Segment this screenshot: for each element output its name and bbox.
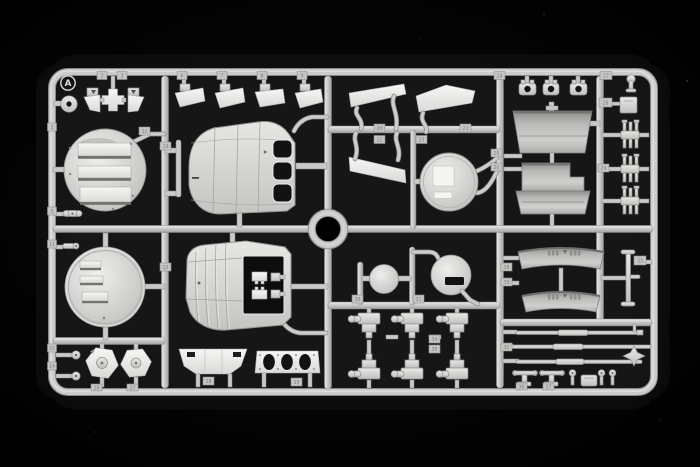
svg-text:22: 22 [376,138,382,144]
svg-text:14: 14 [49,364,55,370]
part-number-tag: 7 [217,72,227,80]
part-number-tag: 16 [91,384,102,392]
part-number-tag: 14 [48,362,57,370]
part-number-tag: 2 [97,72,107,80]
svg-text:26: 26 [493,165,499,171]
svg-text:24: 24 [496,74,502,80]
part-number-tag: 33 [634,256,646,265]
runner-vertical-center-lower [325,247,332,389]
sprue-letter: A [65,79,72,89]
svg-text:29: 29 [600,166,606,172]
part-number-tag: 27 [600,72,612,80]
svg-text:2: 2 [100,74,103,80]
part-number-tag: 21 [460,124,471,132]
runner-horizontal-hex [53,338,165,345]
part-number-tag: 12 [139,127,150,135]
disc-slat-details [78,143,131,205]
svg-text:28: 28 [602,101,608,107]
turret-gun-ports [273,140,292,202]
part-number-tag: 13 [160,263,171,271]
part-number-tag: 34 [429,335,440,343]
part-number-tag: 8 [257,72,267,80]
svg-text:20: 20 [376,126,382,132]
part-number-tag: 37 [543,383,554,391]
part-number-tag: 24 [494,72,505,80]
svg-text:33: 33 [637,259,643,265]
part-number-tag: 23 [416,136,427,144]
svg-text:35: 35 [431,347,437,353]
part-plain-disc [370,265,399,294]
svg-text:27: 27 [603,74,609,80]
svg-text:16: 16 [93,386,99,392]
part-number-tag: 1 [48,123,57,131]
part-number-tag: 19 [291,378,302,386]
part-number-tag: 28 [599,98,612,107]
part-number-tag: 17 [127,384,138,392]
part-number-tag: 26 [491,163,502,171]
svg-text:7: 7 [220,74,223,80]
part-number-tag: 31 [413,295,424,303]
svg-text:37: 37 [545,385,551,391]
svg-text:38: 38 [503,265,509,271]
part-number-tag: 3 [117,72,127,80]
svg-text:36: 36 [518,385,524,391]
center-ring-runner [308,209,348,249]
part-slotted-disc [431,255,471,295]
part-number-tag: 29 [598,164,609,172]
svg-text:6: 6 [180,74,183,80]
part-number-tag: 30 [352,295,363,303]
part-number-tag: 10 [160,142,171,150]
part-number-tag: 36 [516,383,527,391]
svg-text:32: 32 [503,345,509,351]
svg-text:10: 10 [162,144,168,150]
svg-text:5: 5 [50,209,53,215]
svg-text:39: 39 [503,280,509,286]
svg-text:3: 3 [120,74,123,80]
svg-text:25: 25 [493,151,499,157]
part-number-tag: 9 [297,72,307,80]
part-number-tag: 18 [203,377,214,385]
runner-horizontal-middle [53,226,653,233]
part-number-tag: 5 [48,207,57,215]
svg-text:8: 8 [260,74,263,80]
part-number-tag: 20 [374,124,385,132]
svg-text:13: 13 [162,265,168,271]
svg-text:9: 9 [300,74,303,80]
part-small-box [581,375,597,386]
sprue-photo-svg: A [0,0,700,467]
svg-text:12: 12 [141,129,147,135]
part-number-tag: 38 [501,263,512,271]
part-number-tag: 32 [501,343,512,351]
svg-text:15: 15 [49,346,55,352]
part-number-tag: 11 [48,240,57,248]
part-number-tag: 6 [177,72,187,80]
part-number-tag: 35 [429,345,440,353]
svg-text:19: 19 [293,380,299,386]
part-number-tag: 39 [501,278,512,286]
svg-text:23: 23 [418,138,424,144]
part-number-tag: 25 [491,149,502,157]
photo-model-kit-sprue: A [0,0,700,467]
runner-horizontal-rods [500,319,652,326]
svg-text:1: 1 [50,125,53,131]
svg-text:31: 31 [415,297,421,303]
svg-text:21: 21 [462,126,468,132]
part-number-tag: 15 [48,344,57,352]
part-number-tag: 22 [374,136,385,144]
svg-text:18: 18 [205,379,211,385]
svg-text:34: 34 [431,337,437,343]
svg-text:11: 11 [49,242,55,248]
svg-text:17: 17 [129,386,135,392]
runner-vertical-center-upper [325,76,332,211]
svg-text:30: 30 [354,297,360,303]
